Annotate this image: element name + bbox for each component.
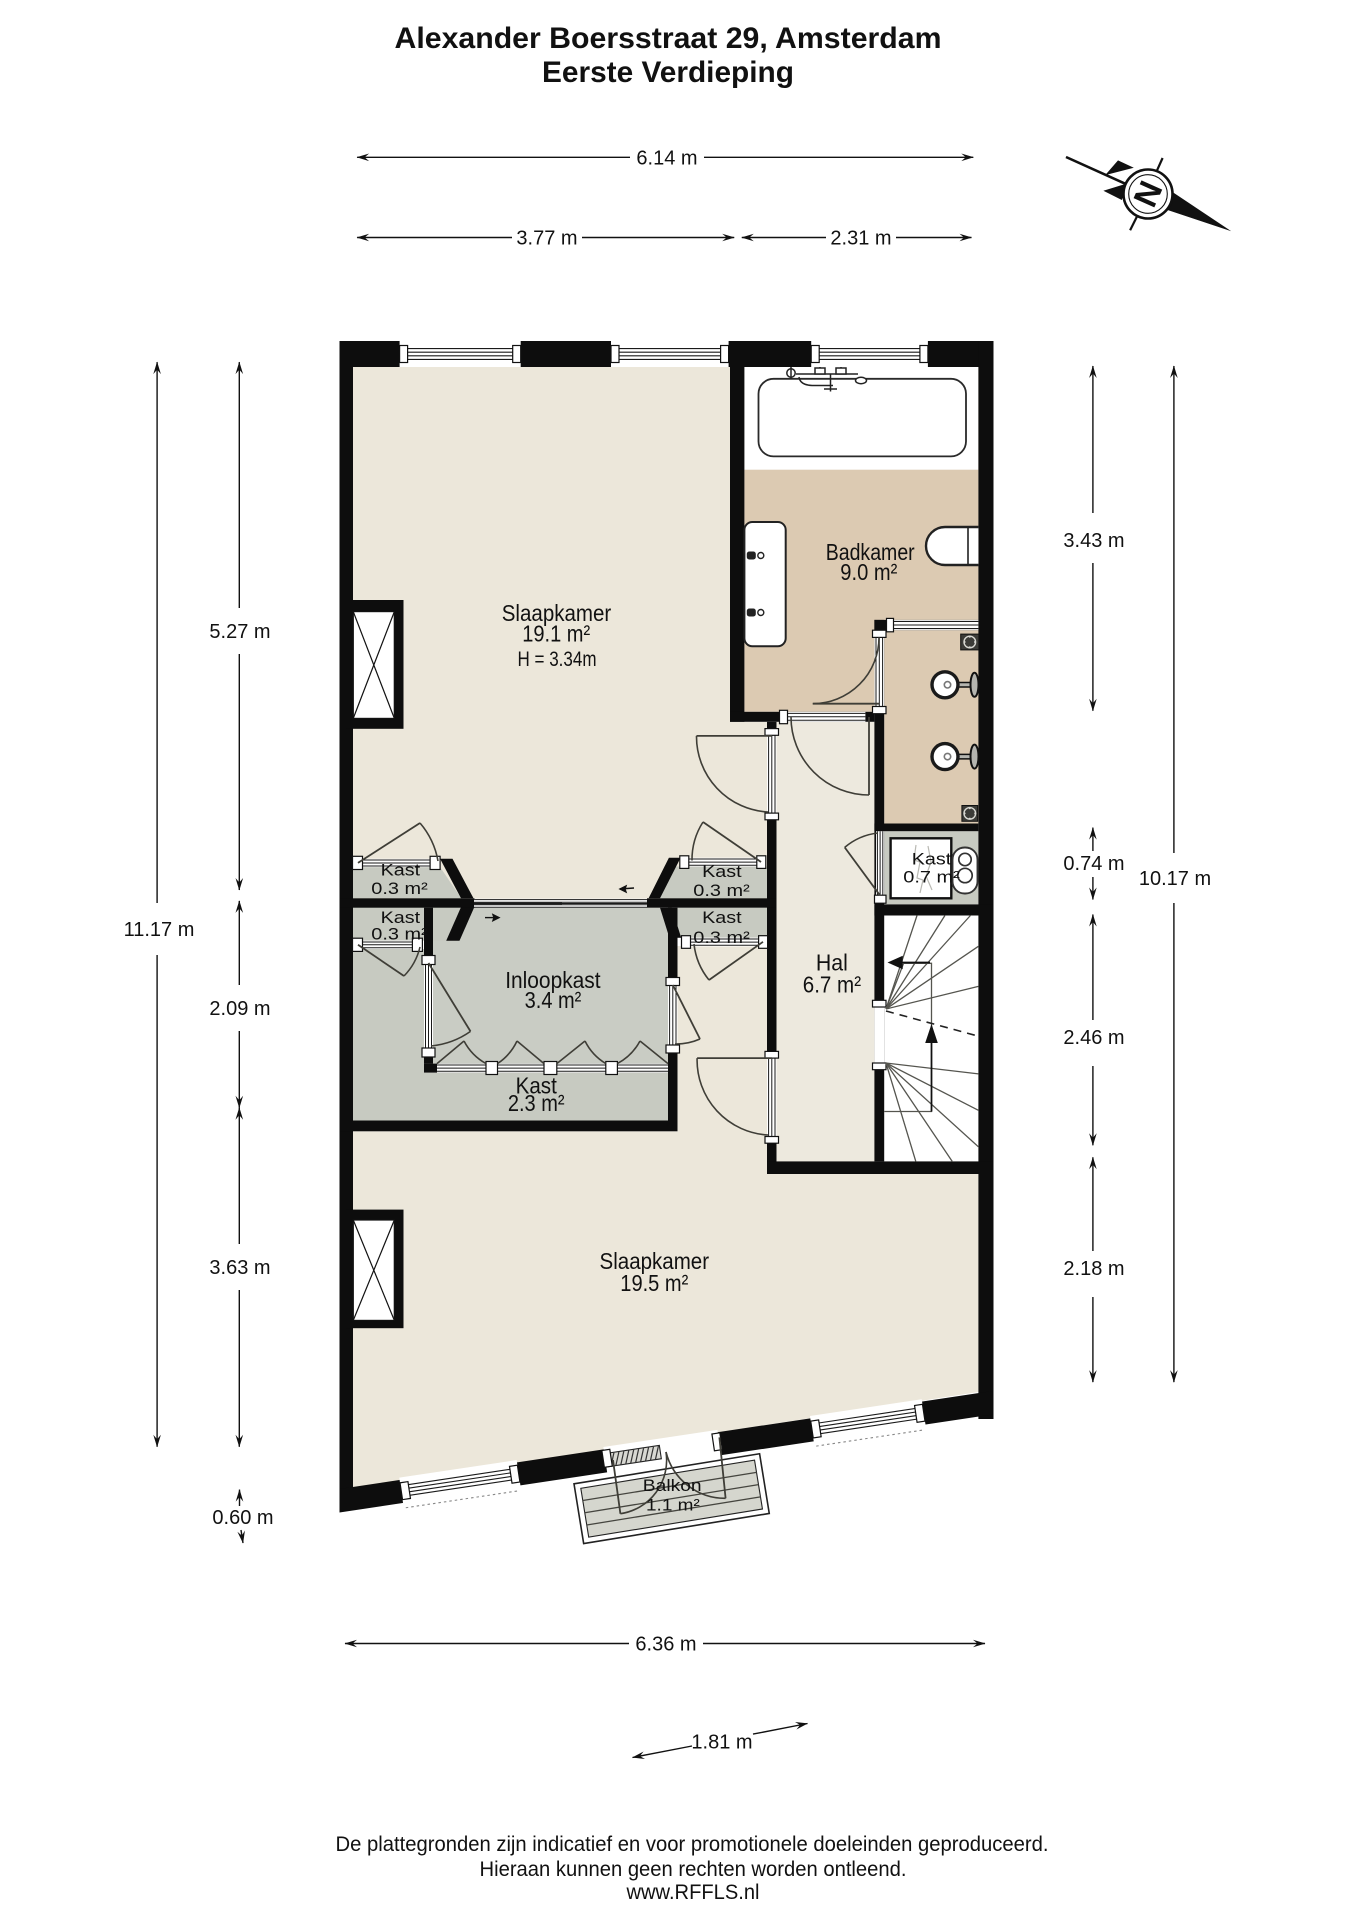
svg-text:6.36 m: 6.36 m xyxy=(635,1634,696,1656)
svg-text:0.3 m²: 0.3 m² xyxy=(371,926,428,944)
svg-text:10.17 m: 10.17 m xyxy=(1139,868,1211,890)
svg-text:3.43 m: 3.43 m xyxy=(1063,530,1124,552)
svg-text:0.3 m²: 0.3 m² xyxy=(693,929,750,947)
svg-text:11.17 m: 11.17 m xyxy=(124,919,195,941)
svg-text:9.0 m²: 9.0 m² xyxy=(840,559,897,585)
svg-text:2.46 m: 2.46 m xyxy=(1063,1027,1124,1049)
svg-text:2.3 m²: 2.3 m² xyxy=(508,1090,565,1116)
svg-text:0.60 m: 0.60 m xyxy=(212,1507,273,1529)
svg-text:Kast: Kast xyxy=(702,909,742,927)
svg-text:2.31 m: 2.31 m xyxy=(830,228,891,250)
svg-text:Eerste Verdieping: Eerste Verdieping xyxy=(542,56,794,89)
svg-text:H = 3.34m: H = 3.34m xyxy=(518,648,597,671)
svg-text:0.3 m²: 0.3 m² xyxy=(693,882,750,900)
svg-text:6.7 m²: 6.7 m² xyxy=(803,971,861,997)
svg-text:5.27 m: 5.27 m xyxy=(209,621,270,643)
svg-text:Kast: Kast xyxy=(381,909,421,927)
svg-text:6.14 m: 6.14 m xyxy=(636,147,697,169)
svg-text:2.09 m: 2.09 m xyxy=(209,998,270,1020)
svg-text:1.1 m²: 1.1 m² xyxy=(646,1497,700,1515)
svg-text:0.74 m: 0.74 m xyxy=(1063,853,1124,875)
svg-text:2.18 m: 2.18 m xyxy=(1063,1258,1124,1280)
svg-text:Alexander Boersstraat 29, Amst: Alexander Boersstraat 29, Amsterdam xyxy=(395,22,942,55)
svg-text:19.1 m²: 19.1 m² xyxy=(522,621,590,647)
svg-text:De plattegronden zijn indicati: De plattegronden zijn indicatief en voor… xyxy=(336,1833,1049,1856)
svg-text:3.63 m: 3.63 m xyxy=(209,1257,270,1279)
svg-text:Kast: Kast xyxy=(702,863,742,881)
svg-text:Kast: Kast xyxy=(381,862,421,880)
svg-text:3.4 m²: 3.4 m² xyxy=(525,987,582,1013)
svg-text:Hieraan kunnen geen rechten wo: Hieraan kunnen geen rechten worden ontle… xyxy=(480,1858,907,1881)
svg-text:0.7 m²: 0.7 m² xyxy=(903,869,960,887)
svg-text:Balkon: Balkon xyxy=(643,1477,702,1495)
svg-text:www.RFFLS.nl: www.RFFLS.nl xyxy=(626,1881,760,1904)
svg-text:0.3 m²: 0.3 m² xyxy=(371,880,428,898)
svg-text:1.81 m: 1.81 m xyxy=(691,1732,752,1754)
svg-text:Kast: Kast xyxy=(912,851,952,869)
svg-text:19.5 m²: 19.5 m² xyxy=(620,1270,688,1296)
svg-text:3.77 m: 3.77 m xyxy=(516,228,577,250)
